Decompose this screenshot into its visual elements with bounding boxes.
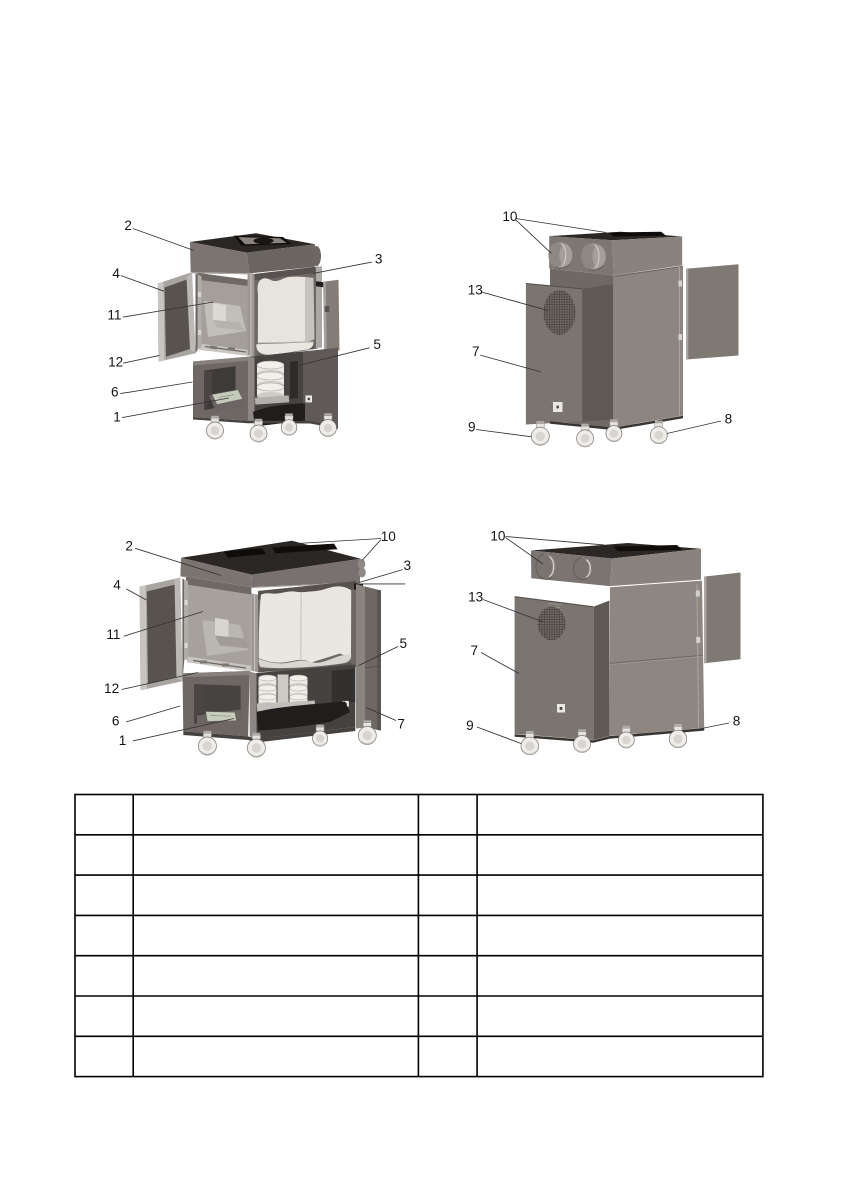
svg-text:11: 11 [107,307,121,322]
svg-text:7: 7 [397,716,405,731]
svg-text:11: 11 [106,627,120,642]
svg-text:5: 5 [373,337,381,352]
svg-text:2: 2 [125,539,133,554]
svg-text:7: 7 [472,344,480,359]
svg-text:2: 2 [124,218,132,233]
svg-text:12: 12 [108,354,123,369]
svg-text:6: 6 [111,384,119,399]
svg-text:9: 9 [468,420,476,435]
svg-text:6: 6 [112,714,120,729]
svg-text:9: 9 [466,718,474,733]
svg-text:10: 10 [502,209,518,224]
svg-text:13: 13 [468,282,483,297]
svg-text:4: 4 [113,577,121,592]
svg-text:4: 4 [112,266,120,281]
svg-text:8: 8 [733,714,741,729]
svg-text:12: 12 [104,681,119,696]
svg-text:10: 10 [490,528,506,543]
svg-text:1: 1 [113,409,121,424]
svg-text:3: 3 [375,252,383,267]
svg-text:5: 5 [400,636,408,651]
svg-text:8: 8 [725,411,733,426]
svg-text:13: 13 [468,590,483,605]
svg-text:10: 10 [381,529,397,544]
svg-text:3: 3 [404,558,412,573]
svg-text:1: 1 [119,733,127,748]
svg-text:7: 7 [471,643,479,658]
